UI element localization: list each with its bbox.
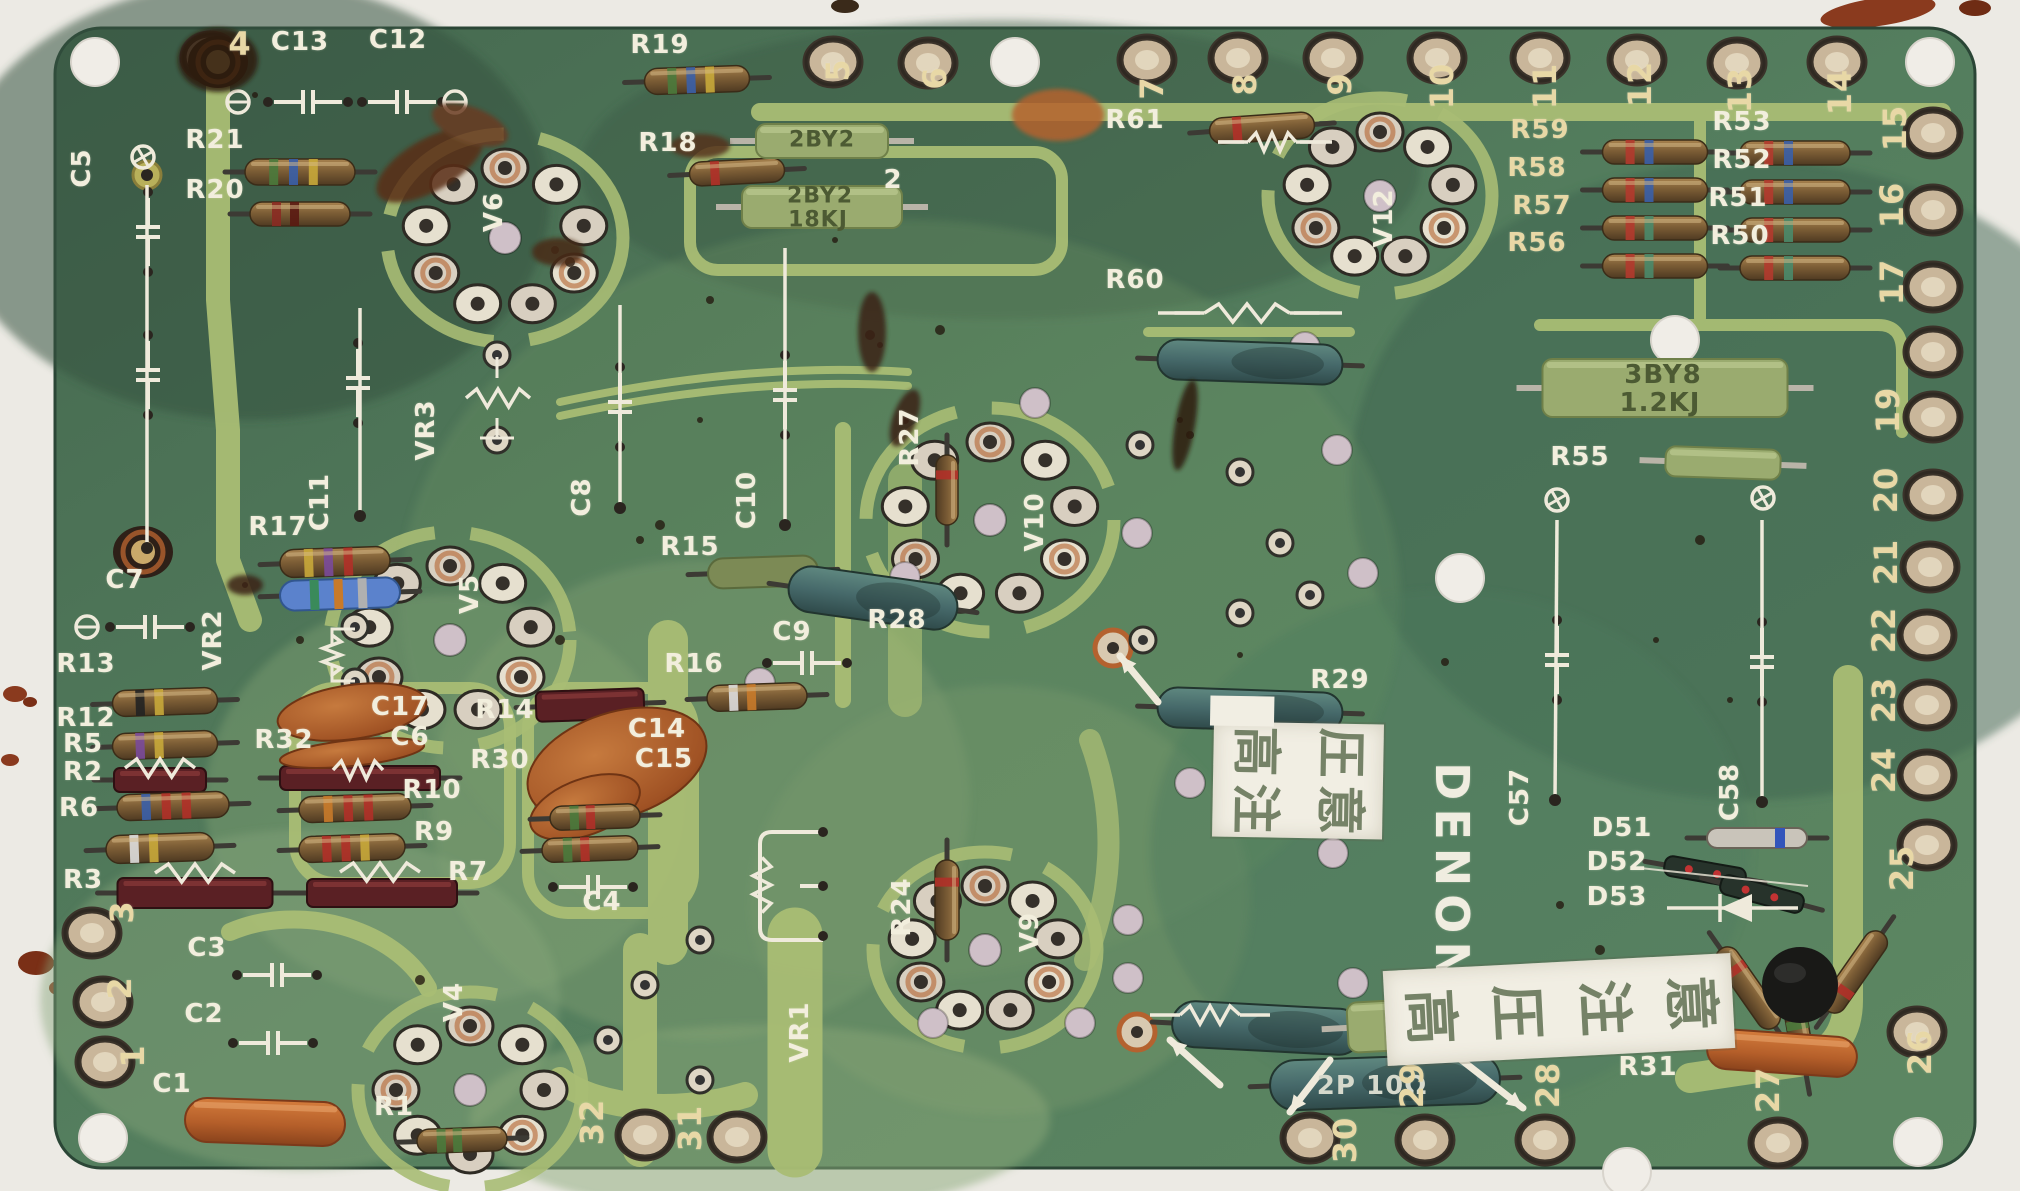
component-orng [184,1097,345,1147]
component-ax [1720,141,1870,165]
component-ax [1720,180,1870,204]
component-ax [1720,256,1870,280]
high-voltage-warning-sticker-upper: 高圧注意 [1212,722,1384,840]
component-teal [1137,338,1363,386]
component-trans [1762,947,1838,1023]
component-teal [1249,1052,1521,1111]
component-grn [716,186,928,228]
component-axd [287,879,477,907]
component-axd [260,766,460,790]
pcb-photo: C13C12R21R20C5C7R19R182R61R59R58R57R56R5… [0,0,2020,1191]
brand-logo: DENON [1425,762,1479,988]
component-grn [1517,359,1814,417]
component-ax [1720,218,1870,242]
component-axd [94,768,226,792]
high-voltage-warning-sticker-lower: 高圧注意 [1383,953,1735,1066]
component-axd [98,878,293,908]
component-grn [730,124,914,158]
